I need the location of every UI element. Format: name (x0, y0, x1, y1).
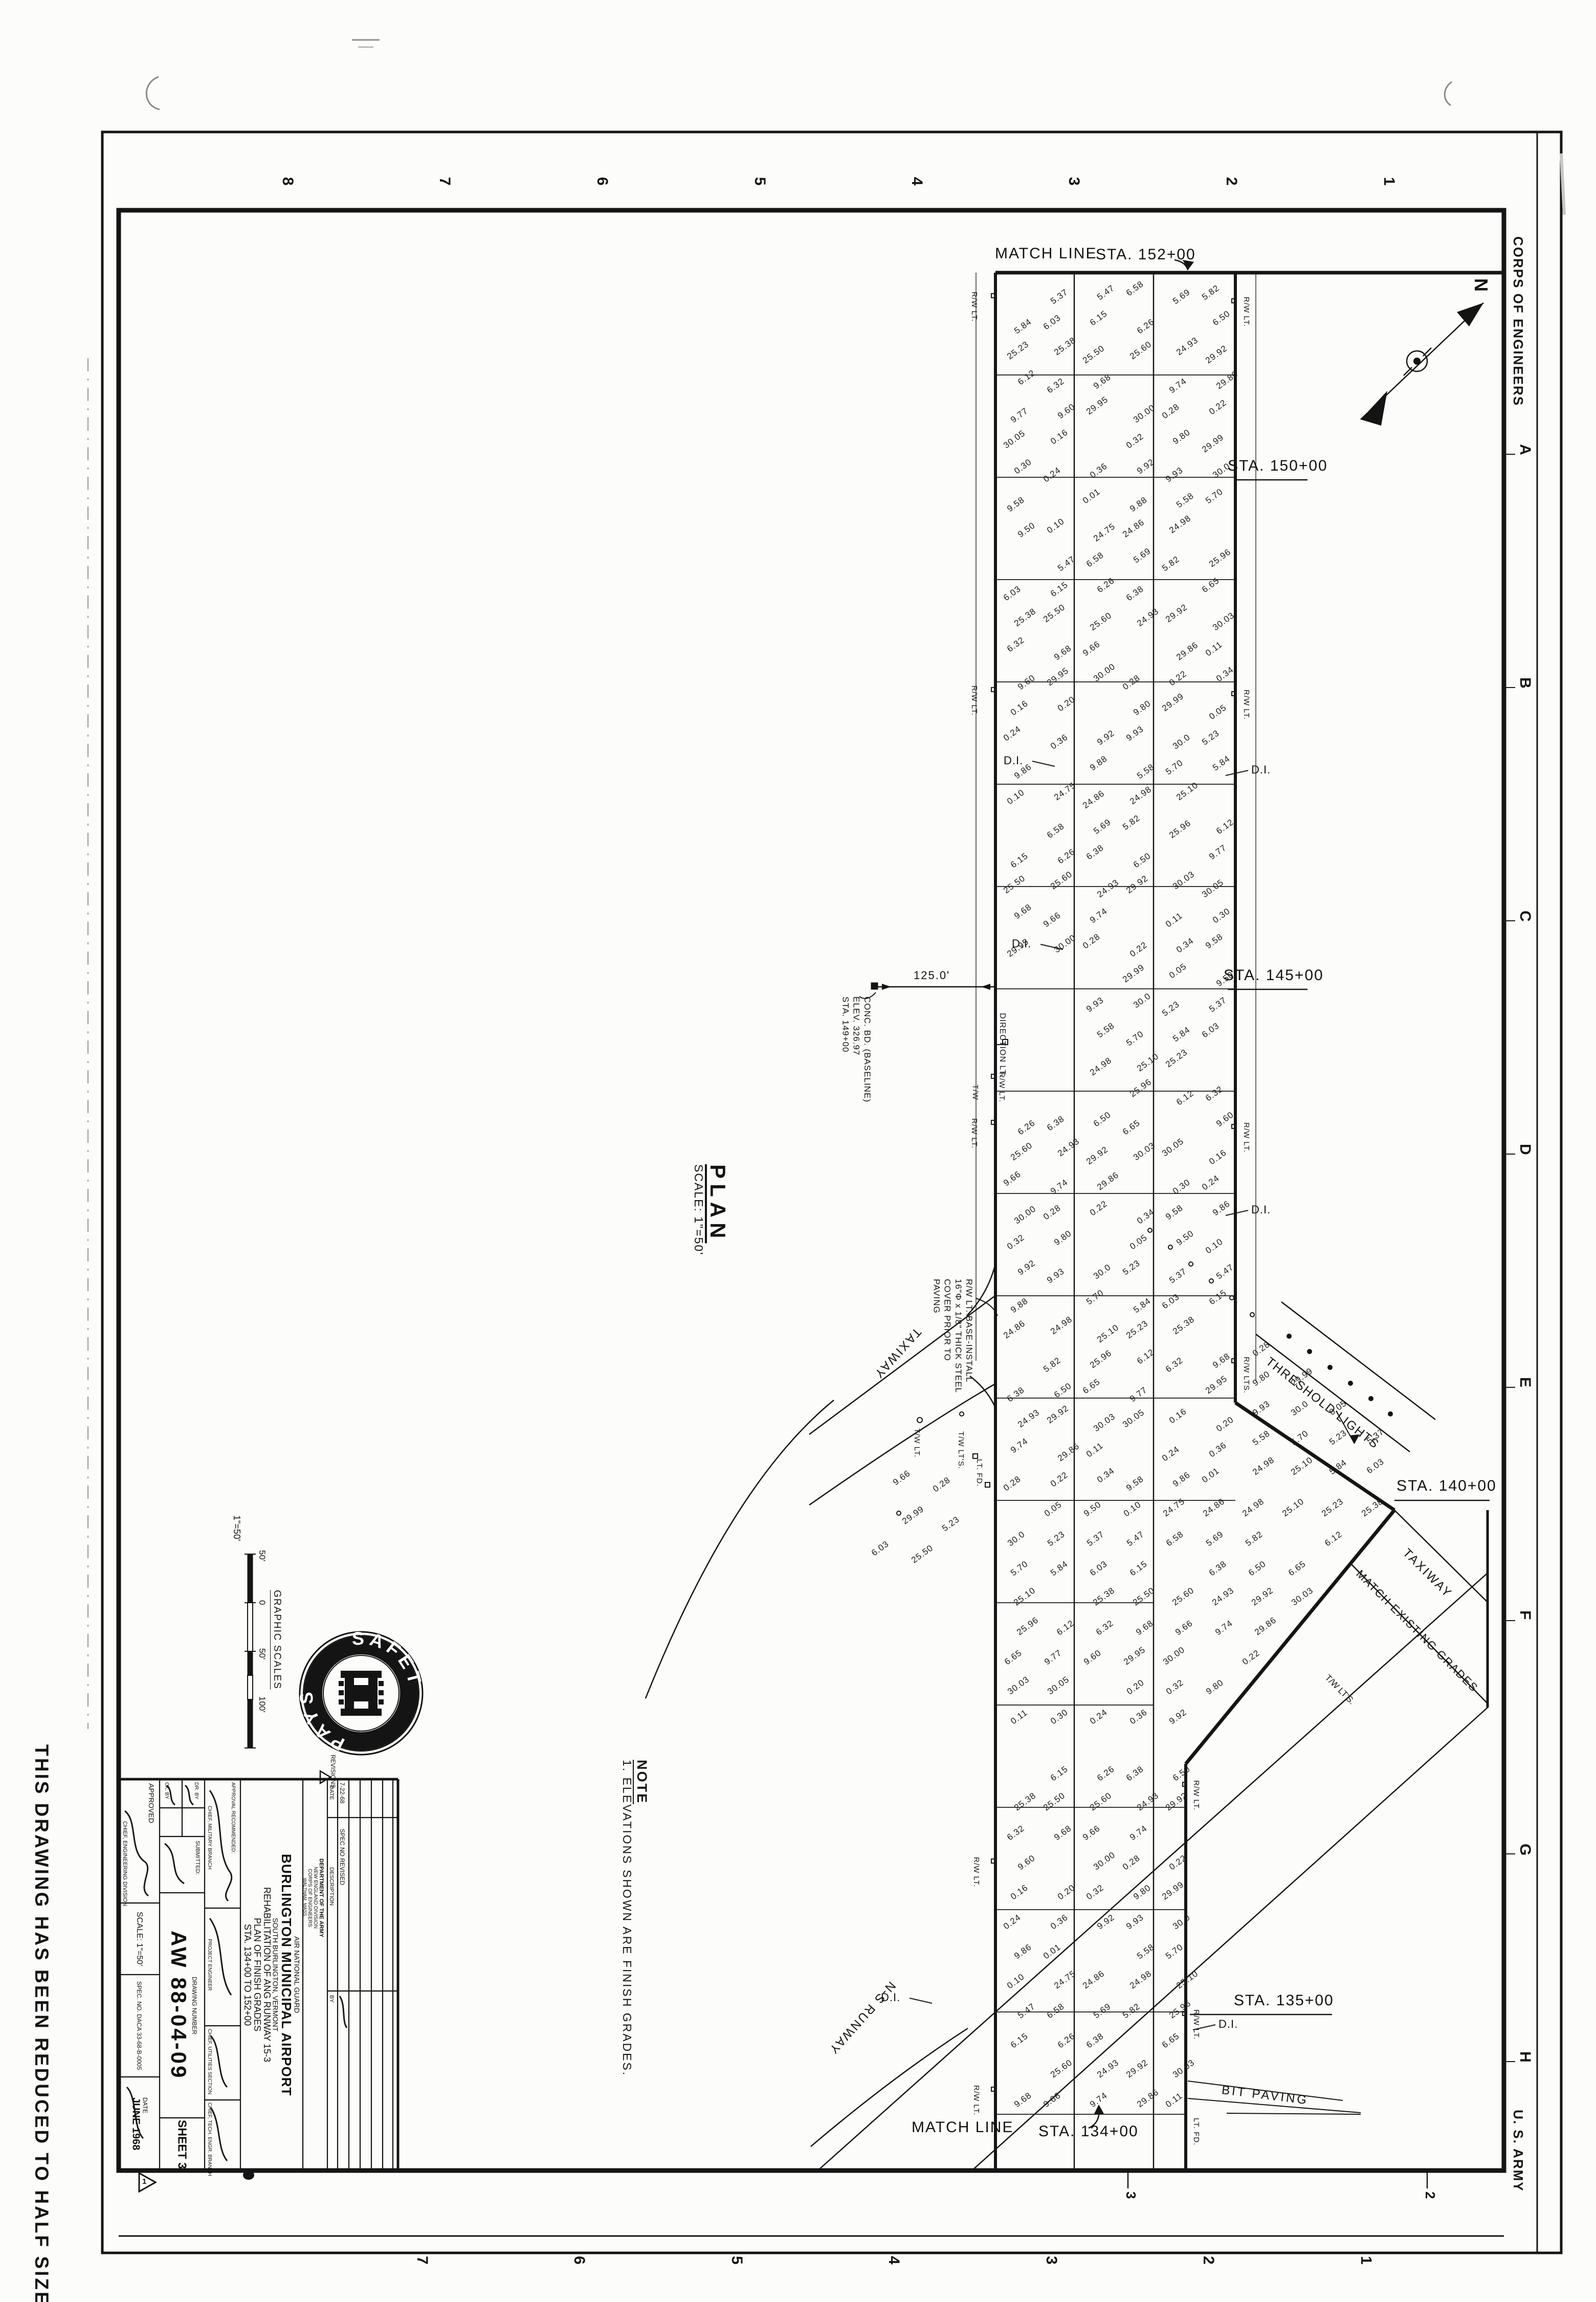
approval-recommended-label: APPROVAL RECOMMENDED: (230, 1782, 236, 1853)
station-label-152: STA. 152+00 (1096, 246, 1196, 263)
edge-light-label: R/W LT. (970, 685, 979, 716)
grid-letter-right: G (1516, 1844, 1534, 1855)
edge-light-label: R/W LT. (1242, 690, 1251, 720)
revision-entry-date: 7-22-68 (339, 1782, 346, 1803)
edge-light-label: R/W LT. (997, 1072, 1006, 1102)
edge-light-label: R/W LT. (972, 2085, 981, 2115)
grid-letter-right: B (1516, 677, 1534, 689)
project-title-cell: AIR NATIONAL GUARD BURLINGTON MUNICIPAL … (242, 1781, 301, 2168)
sheet-number: SHEET 3 (175, 2120, 189, 2169)
edge-light-label: R/W LT. (1242, 1122, 1251, 1153)
plan-title: PLAN (705, 1164, 730, 1267)
grid-letter-right: C (1516, 911, 1534, 922)
grid-letter-right: H (1516, 2051, 1534, 2063)
date-label: DATE (142, 2097, 149, 2150)
match-line-bottom-label: MATCH LINE (912, 2119, 1013, 2136)
edge-light-label: T/W LT. (913, 1428, 921, 1458)
drawing-number-label: DRAWING NUMBER (191, 1931, 198, 2079)
project-engineer-label: PROJECT ENGINEER (207, 1939, 212, 1991)
reduced-size-stamp: THIS DRAWING HAS BEEN REDUCED TO HALF SI… (31, 1744, 52, 2302)
chief-utilities-label: CHIEF, UTILITIES SECTION (207, 2029, 212, 2094)
approved-title: CHIEF, ENGINEERING DIVISION (122, 1821, 128, 1906)
graphic-scale-ratio: 1"=50' (231, 1515, 242, 1541)
grid-number-top: 7 (436, 177, 453, 186)
edge-light-label: R/W LT. (1242, 297, 1251, 327)
note-block: NOTE 1. ELEVATIONS SHOWN ARE FINISH GRAD… (620, 1760, 650, 2108)
edge-light-label: LT. FD. (1192, 2118, 1201, 2145)
drop-inlet-label: D.I. (881, 1991, 900, 2004)
edge-light-label: R/W LTS. (1242, 1357, 1251, 1393)
edge-light-label: R/W LT. (1192, 1780, 1201, 1810)
corps-of-engineers-label: CORPS OF ENGINEERS (1510, 236, 1526, 406)
grid-number-bottom: 7 (413, 2256, 431, 2265)
edge-light-label: LT. FD. (975, 1459, 984, 1487)
drop-inlet-label: D.I. (1251, 763, 1271, 777)
baseline-callout: CONC. BD. (BASELINE) ELEV. 326.97 STA. 1… (840, 997, 873, 1102)
match-line-top-label: MATCH LINE (995, 245, 1097, 262)
note-body: 1. ELEVATIONS SHOWN ARE FINISH GRADES. (620, 1760, 634, 2108)
scale-field: SCALE: 1"=50' (135, 1912, 144, 1966)
station-label-150: STA. 150+00 (1228, 457, 1328, 475)
dr-by-label: DR. BY (193, 1782, 199, 1799)
revisions-table-label: REVISIONS (329, 1755, 337, 1788)
us-army-label: U. S. ARMY (1510, 2110, 1526, 2192)
grid-number-top: 4 (908, 177, 925, 186)
grid-number-bottom: 1 (1357, 2256, 1375, 2265)
edge-light-label: R/W LT. (970, 1118, 979, 1148)
grid-number-bottom: 5 (728, 2256, 745, 2265)
grid-number-top: 3 (1065, 177, 1082, 186)
spec-field: SPEC. NO. DACA 33-68-B-0005 (136, 1981, 143, 2070)
revision-by-header: BY (328, 1995, 335, 2003)
grid-number-top: 5 (751, 177, 768, 186)
chief-military-label: CHIEF, MILITARY BRANCH (207, 1806, 212, 1869)
cover-callout: R/W LT. BASE-INSTALL 16"Φ x 1/8" THICK S… (931, 1279, 974, 1393)
plan-scale-note: SCALE: 1"=50' (692, 1164, 705, 1267)
edge-light-label: R/W LT. (970, 292, 979, 322)
note-title: NOTE (634, 1760, 650, 2108)
plan-title-block: PLAN SCALE: 1"=50' (692, 1164, 730, 1267)
station-label-135: STA. 135+00 (1234, 1992, 1334, 2009)
revision-marker: 1 (142, 2177, 146, 2186)
grid-letter-right: D (1516, 1144, 1534, 1155)
drop-inlet-label: D.I. (1004, 754, 1023, 767)
inner-border (119, 210, 1504, 2171)
edge-light-label: R/W LT. (1192, 2009, 1201, 2040)
revision-entry-description: SPEC NO REVISED (339, 1829, 346, 1885)
date-value: JUNE 1968 (130, 2097, 142, 2150)
drawing-number: AW 88-04-09 (166, 1931, 191, 2079)
scale-bar (245, 1550, 275, 1765)
station-label-145: STA. 145+00 (1224, 967, 1324, 984)
agency-cell: DEPARTMENT OF THE ARMY NEW ENGLAND DIVIS… (301, 1821, 325, 1975)
revision-date-header: DATE (328, 1785, 335, 1800)
approved-label: APPROVED (147, 1783, 156, 1823)
station-label-140: STA. 140+00 (1396, 1477, 1497, 1495)
grid-letter-right: F (1516, 1610, 1534, 1620)
grid-letter-right: A (1516, 444, 1534, 455)
grid-number-bottom: 4 (885, 2256, 902, 2265)
edge-light-label: R/W LT. (972, 1857, 981, 1887)
castle-emblem (339, 1671, 384, 1716)
grid-letter-right: E (1516, 1377, 1534, 1387)
revision-description-header: DESCRIPTION (328, 1867, 335, 1906)
edge-light-label: T/W LT'S. (957, 1431, 965, 1469)
dimension-125: 125.0' (914, 969, 950, 982)
grid-number-top: 2 (1223, 177, 1240, 186)
grid-number-bottom: 6 (570, 2256, 588, 2265)
grid-number-top: 1 (1380, 177, 1398, 186)
plan-linework (0, 0, 1596, 2302)
drop-inlet-label: D.I. (1251, 1203, 1271, 1216)
grid-number-top: 8 (279, 177, 296, 186)
grid-number-top: 6 (593, 177, 611, 186)
grid-number-inner: 3 (1123, 2192, 1139, 2199)
edge-light-label: T/W (971, 1084, 980, 1100)
submitted-label: SUBMITTED: (194, 1841, 201, 1875)
grid-number-bottom: 2 (1200, 2256, 1217, 2265)
grid-number-inner: 2 (1422, 2192, 1438, 2199)
ck-by-label: CK. BY (164, 1782, 169, 1799)
drop-inlet-label: D.I. (1218, 2018, 1238, 2031)
direction-lt-label: DIRECTION LT. (997, 1013, 1007, 1077)
safety-pays-logo: SAFETY PAYS (296, 1628, 429, 1761)
chief-tech-label: CHIEF, TECH. ENGR. BRANCH (207, 2102, 212, 2176)
grid-number-bottom: 3 (1043, 2256, 1060, 2265)
drawing-sheet: THIS DRAWING HAS BEEN REDUCED TO HALF SI… (0, 0, 1596, 2302)
station-label-134: STA. 134+00 (1038, 2123, 1139, 2140)
north-label: N (1470, 278, 1492, 292)
